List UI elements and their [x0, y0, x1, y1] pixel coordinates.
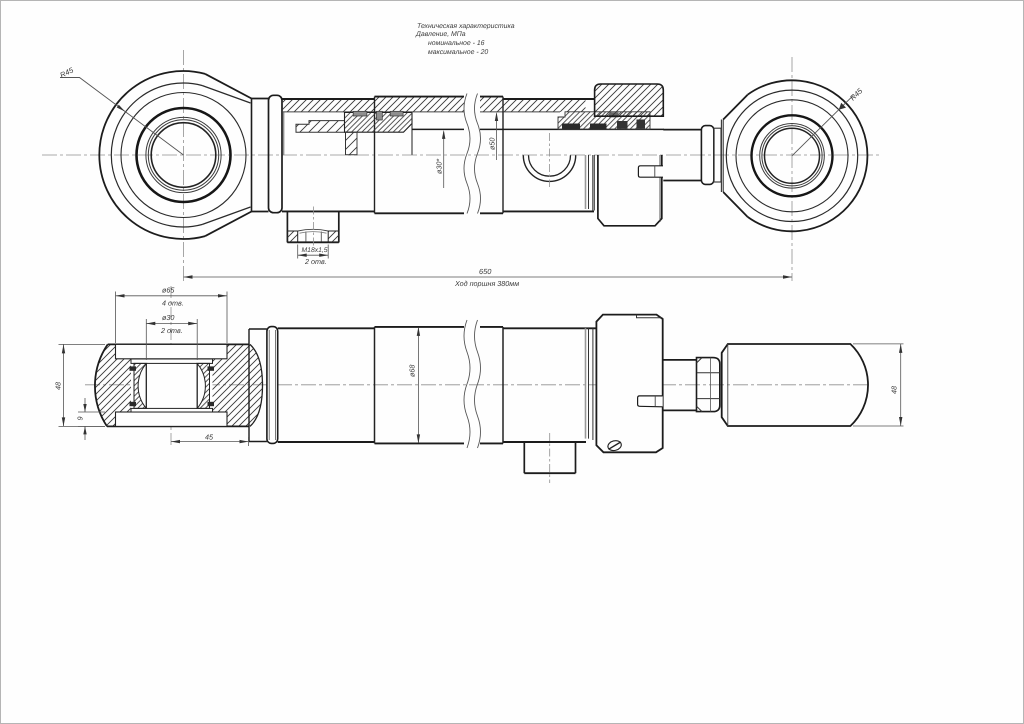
svg-text:номинальное - 16: номинальное - 16 — [428, 40, 485, 47]
svg-text:ø30*: ø30* — [435, 159, 444, 174]
svg-text:ø65: ø65 — [162, 286, 175, 295]
svg-text:ø68: ø68 — [408, 365, 417, 377]
svg-text:ø30: ø30 — [162, 313, 174, 322]
svg-text:Давление, МПа: Давление, МПа — [415, 31, 466, 38]
svg-text:Техническая характеристика: Техническая характеристика — [417, 23, 515, 30]
svg-text:M18x1,5: M18x1,5 — [302, 247, 328, 254]
svg-text:48: 48 — [890, 386, 899, 394]
svg-text:R45: R45 — [848, 86, 865, 103]
svg-text:ø50: ø50 — [488, 138, 497, 150]
svg-text:9: 9 — [76, 417, 85, 421]
svg-text:максимальное - 20: максимальное - 20 — [428, 49, 488, 56]
svg-text:2 отв.: 2 отв. — [160, 326, 183, 335]
svg-text:4 отв.: 4 отв. — [162, 299, 184, 308]
svg-text:45: 45 — [205, 432, 214, 441]
svg-text:Ход поршня 380мм: Ход поршня 380мм — [454, 279, 519, 288]
svg-text:650: 650 — [479, 267, 492, 276]
svg-text:2 отв.: 2 отв. — [304, 257, 327, 266]
svg-text:48: 48 — [54, 382, 63, 390]
